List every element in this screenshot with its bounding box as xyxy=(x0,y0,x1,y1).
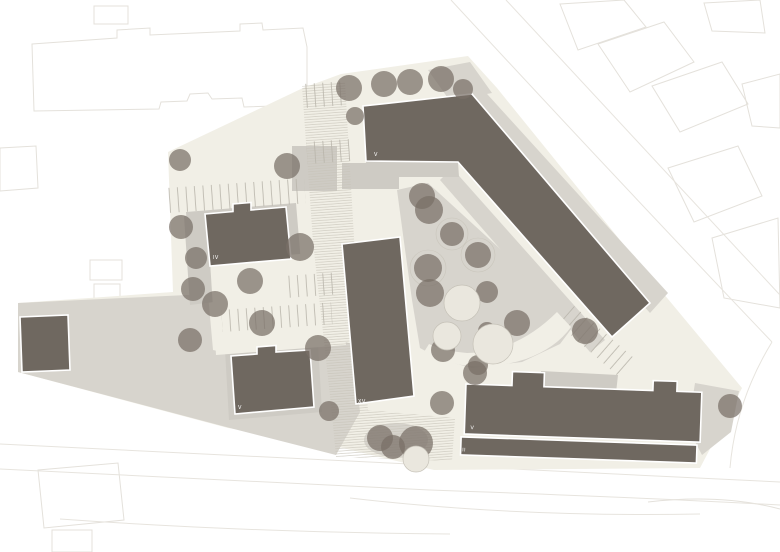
shrub xyxy=(433,322,461,350)
tree xyxy=(346,107,364,125)
label-west-villa: IV xyxy=(213,255,219,261)
tree xyxy=(465,242,491,268)
label-south-slab: V xyxy=(470,425,474,431)
tree xyxy=(274,153,300,179)
tree xyxy=(572,318,598,344)
tree xyxy=(286,233,314,261)
tree xyxy=(305,335,331,361)
tree xyxy=(249,310,275,336)
label-south-wing: II xyxy=(462,447,466,453)
shrub xyxy=(444,285,480,321)
tree xyxy=(430,391,454,415)
tree xyxy=(416,279,444,307)
shrub xyxy=(403,446,429,472)
tree xyxy=(178,328,202,352)
tree xyxy=(415,196,443,224)
tree xyxy=(336,75,362,101)
shrub xyxy=(473,324,513,364)
tree xyxy=(169,215,193,239)
tree xyxy=(463,361,487,385)
label-north-slab: V xyxy=(374,152,378,158)
label-southwest-villa: V xyxy=(238,405,242,411)
tree xyxy=(185,247,207,269)
tree xyxy=(237,268,263,294)
stall-row xyxy=(284,273,333,298)
tree xyxy=(319,401,339,421)
tree xyxy=(371,71,397,97)
tree xyxy=(181,277,205,301)
site-plan-drawing: V IV V XV V II xyxy=(0,0,780,552)
building-garage xyxy=(20,315,70,372)
label-tower: XV xyxy=(358,399,366,405)
tree xyxy=(169,149,191,171)
site-plan-canvas: V IV V XV V II xyxy=(0,0,780,552)
tree xyxy=(428,66,454,92)
tree xyxy=(453,79,473,99)
stall-row xyxy=(306,139,351,164)
tree xyxy=(414,254,442,282)
building-southwest-villa xyxy=(231,346,314,415)
tree xyxy=(440,222,464,246)
tree xyxy=(718,394,742,418)
tree xyxy=(202,291,228,317)
tree xyxy=(397,69,423,95)
